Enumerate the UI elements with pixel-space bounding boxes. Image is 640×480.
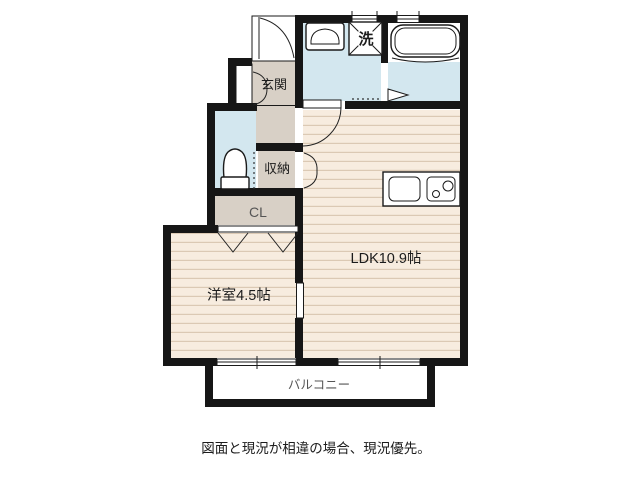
wall-segment: [207, 103, 215, 233]
washing-machine-label: 洗: [358, 30, 373, 48]
top-window-right: [397, 11, 419, 23]
wall-segment: [295, 318, 303, 358]
top-window-left: [352, 11, 377, 23]
wall-segment: [256, 143, 303, 151]
washbasin: [306, 23, 344, 50]
toilet: [221, 149, 249, 189]
hall-floor: [256, 106, 295, 143]
closet-label: CL: [249, 204, 267, 220]
wall-segment: [163, 225, 171, 366]
wall-segment: [460, 15, 468, 366]
caption: 図面と現況が相違の場合、現況優先。: [201, 441, 431, 456]
floorplan-svg: 玄関 洗 収納 CL LDK10.9帖 洋室4.5帖 バルコニー 図面と現況が相…: [0, 0, 640, 480]
western-room-label: 洋室4.5帖: [207, 287, 271, 304]
wall-segment: [295, 190, 303, 283]
wall-segment: [296, 358, 338, 366]
wall-segment: [420, 358, 468, 366]
wall-segment: [345, 101, 468, 109]
wall-segment: [163, 225, 218, 233]
shoe-cabinet: [236, 64, 252, 107]
balcony-wall: [205, 399, 435, 407]
kitchen-counter: [383, 172, 460, 206]
storage-label: 収納: [264, 161, 290, 176]
wall-segment: [228, 58, 252, 66]
entrance-label: 玄関: [261, 77, 287, 92]
ldk-label: LDK10.9帖: [351, 250, 422, 267]
bathtub: [391, 25, 460, 62]
wall-segment: [163, 358, 217, 366]
floorplan-page: 玄関 洗 収納 CL LDK10.9帖 洋室4.5帖 バルコニー 図面と現況が相…: [0, 0, 640, 480]
balcony-label: バルコニー: [288, 378, 350, 392]
room-opening: [297, 283, 304, 318]
wall-segment: [295, 15, 303, 108]
ldk-floor: [303, 110, 460, 358]
balcony-wall: [427, 366, 435, 407]
